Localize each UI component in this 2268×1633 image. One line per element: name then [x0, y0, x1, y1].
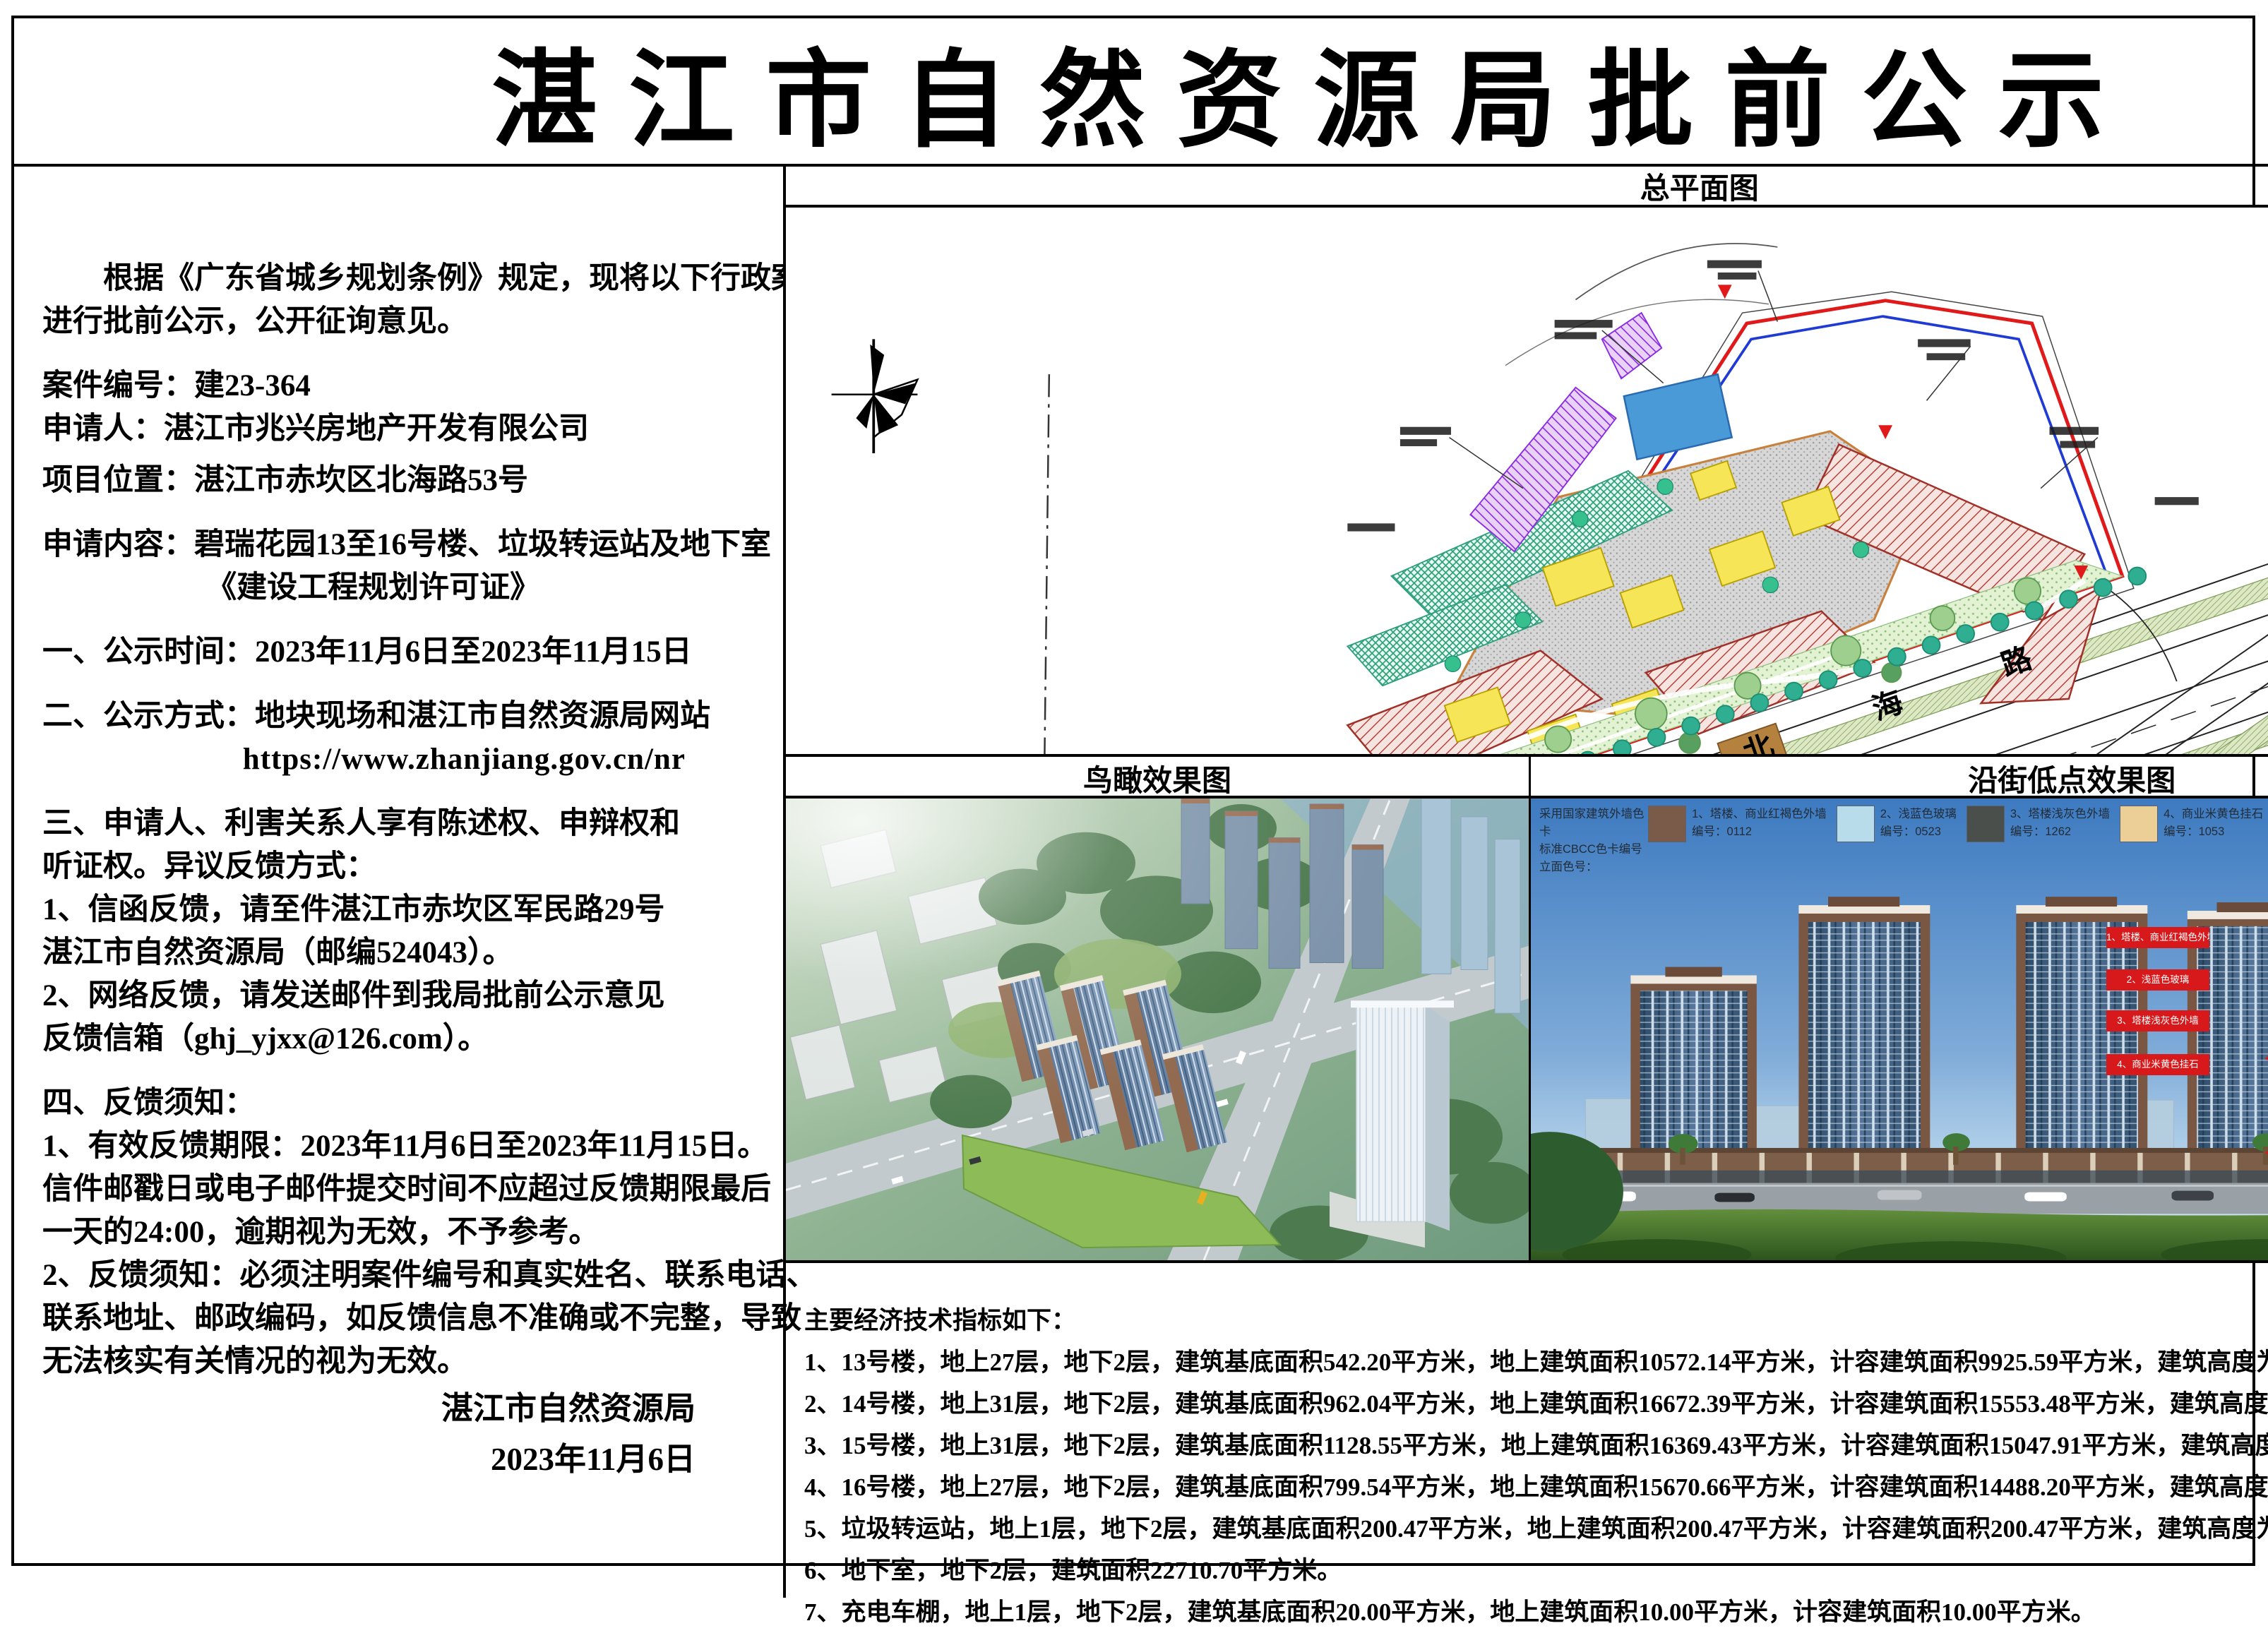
legend-intro-line: 标准CBCC色卡编号 — [1539, 841, 1645, 859]
birdseye-figure — [786, 798, 1529, 1260]
publicity-url: https://www.zhanjiang.gov.cn/nr — [243, 738, 773, 781]
indicators-panel: 主要经济技术指标如下： 1、13号楼，地上27层，地下2层，建筑基底面积542.… — [786, 1263, 2268, 1633]
mail-feedback-line: 湛江市自然资源局（邮编524043）。 — [42, 931, 773, 974]
indicator-line: 7、充电车棚，地上1层，地下2层，建筑基底面积20.00平方米，地上建筑面积10… — [804, 1591, 2268, 1633]
notice-page: 湛江市自然资源局批前公示 根据《广东省城乡规划条例》规定，现将以下行政案件 进行… — [11, 16, 2255, 1566]
notice-body: 根据《广东省城乡规划条例》规定，现将以下行政案件 进行批前公示，公开征询意见。 … — [14, 167, 786, 1598]
legend-item: 2、浅蓝色玻璃编号：0523 — [1837, 806, 1957, 842]
legend-item: 4、商业米黄色挂石编号：1053 — [2120, 806, 2263, 842]
signature-block: 湛江市自然资源局 2023年11月6日 — [42, 1383, 773, 1569]
tower-15 — [1798, 897, 1930, 1155]
callout-label: 4、商业米黄色挂石 — [2106, 1054, 2209, 1075]
legend-intro-line: 立面色号： — [1539, 859, 1645, 876]
page-content: 根据《广东省城乡规划条例》规定，现将以下行政案件 进行批前公示，公开征询意见。 … — [14, 167, 2268, 1563]
publicity-method: 二、公示方式：地块现场和湛江市自然资源局网站 — [42, 695, 773, 738]
project-location: 项目位置：湛江市赤坎区北海路53号 — [42, 459, 773, 502]
legend-code: 编号：0112 — [1692, 823, 1827, 841]
signature-org: 湛江市自然资源局 — [42, 1383, 696, 1434]
case-number: 案件编号：建23-364 — [42, 364, 773, 407]
color-swatch — [2120, 806, 2158, 842]
application-content: 申请内容：碧瑞花园13至16号楼、垃圾转运站及地下室 — [42, 523, 773, 566]
legend-intro-line: 采用国家建筑外墙色卡 — [1539, 806, 1645, 841]
legend-item: 3、塔楼浅灰色外墙编号：1262 — [1966, 806, 2110, 842]
notice-line: 进行批前公示，公开征询意见。 — [42, 300, 773, 343]
street-panel: 采用国家建筑外墙色卡 标准CBCC色卡编号 立面色号： 1、塔楼、商业红褐色外墙… — [1529, 798, 2268, 1260]
site-plan-panel: 北 海 路 — [786, 208, 2268, 757]
rights-line: 三、申请人、利害关系人享有陈述权、申辩权和 — [42, 802, 773, 845]
site-plan-caption: 总平面图 — [786, 167, 2268, 208]
site-plan-figure: 北 海 路 — [786, 208, 2268, 757]
notes-line: 1、有效反馈期限：2023年11月6日至2023年11月15日。 — [42, 1125, 773, 1168]
legend-intro: 采用国家建筑外墙色卡 标准CBCC色卡编号 立面色号： — [1539, 806, 1645, 876]
publicity-period: 一、公示时间：2023年11月6日至2023年11月15日 — [42, 630, 773, 674]
notes-heading: 四、反馈须知： — [42, 1082, 773, 1125]
callout-label: 2、浅蓝色玻璃 — [2106, 969, 2209, 991]
notes-line: 无法核实有关情况的视为无效。 — [42, 1340, 773, 1383]
web-feedback-line: 2、网络反馈，请发送邮件到我局批前公示意见 — [42, 974, 773, 1017]
site-plan-title: 总平面图 — [1640, 165, 1759, 208]
notes-line: 2、反馈须知：必须注明案件编号和真实姓名、联系电话、 — [42, 1254, 773, 1297]
signature-date: 2023年11月6日 — [42, 1434, 696, 1485]
legend-item: 1、塔楼、商业红褐色外墙编号：0112 — [1648, 806, 1827, 842]
permit-name: 《建设工程规划许可证》 — [206, 566, 773, 609]
rights-line: 听证权。异议反馈方式： — [42, 845, 773, 888]
render-row: 采用国家建筑外墙色卡 标准CBCC色卡编号 立面色号： 1、塔楼、商业红褐色外墙… — [786, 798, 2268, 1263]
notes-line: 一天的24:00，逾期视为无效，不予参考。 — [42, 1211, 773, 1254]
street-caption: 沿街低点效果图 — [1529, 757, 2268, 800]
indicators-heading: 主要经济技术指标如下： — [804, 1300, 2268, 1341]
birdseye-title: 鸟瞰效果图 — [1083, 757, 1231, 800]
mail-feedback-line: 1、信函反馈，请至件湛江市赤坎区军民路29号 — [42, 888, 773, 931]
applicant: 申请人：湛江市兆兴房地产开发有限公司 — [42, 407, 773, 450]
feedback-email: 反馈信箱（ghj_yjxx@126.com）。 — [42, 1017, 773, 1060]
notes-line: 联系地址、邮政编码，如反馈信息不准确或不完整，导致 — [42, 1297, 773, 1340]
tower-16 — [1630, 967, 1757, 1155]
color-swatch — [1648, 806, 1686, 842]
indicator-line: 2、14号楼，地上31层，地下2层，建筑基底面积962.04平方米，地上建筑面积… — [804, 1383, 2268, 1425]
indicator-line: 4、16号楼，地上27层，地下2层，建筑基底面积799.54平方米，地上建筑面积… — [804, 1466, 2268, 1508]
street-title: 沿街低点效果图 — [1968, 757, 2176, 800]
render-captions: 鸟瞰效果图 沿街低点效果图 — [786, 757, 2268, 798]
indicator-line: 3、15号楼，地上31层，地下2层，建筑基底面积1128.55平方米，地上建筑面… — [804, 1425, 2268, 1466]
legend-label: 3、塔楼浅灰色外墙 — [2010, 806, 2110, 823]
notes-line: 信件邮戳日或电子邮件提交时间不应超过反馈期限最后 — [42, 1168, 773, 1211]
birdseye-panel — [786, 798, 1529, 1260]
facade-legend: 采用国家建筑外墙色卡 标准CBCC色卡编号 立面色号： 1、塔楼、商业红褐色外墙… — [1539, 806, 2263, 876]
legend-label: 2、浅蓝色玻璃 — [1880, 806, 1957, 823]
color-swatch — [1837, 806, 1875, 842]
legend-label: 1、塔楼、商业红褐色外墙 — [1692, 806, 1827, 823]
legend-code: 编号：1262 — [2010, 823, 2110, 841]
indicator-line: 5、垃圾转运站，地上1层，地下2层，建筑基底面积200.47平方米，地上建筑面积… — [804, 1508, 2268, 1550]
commercial-podium — [1589, 1148, 2268, 1183]
legend-items: 1、塔楼、商业红褐色外墙编号：0112 2、浅蓝色玻璃编号：0523 3、塔楼浅… — [1648, 806, 2263, 842]
light-flare — [786, 798, 1529, 1260]
legend-label: 4、商业米黄色挂石 — [2163, 806, 2263, 823]
legend-code: 编号：0523 — [1880, 823, 1957, 841]
page-title: 湛江市自然资源局批前公示 — [491, 15, 2135, 168]
color-swatch — [1966, 806, 2005, 842]
figures-column: 总平面图 — [786, 167, 2268, 1598]
legend-code: 编号：1053 — [2163, 823, 2263, 841]
callout-label: 1、塔楼、商业红褐色外墙 — [2106, 927, 2209, 948]
callout-label: 3、塔楼浅灰色外墙 — [2106, 1010, 2209, 1031]
indicator-line: 6、地下室，地下2层，建筑面积22710.70平方米。 — [804, 1550, 2268, 1591]
indicator-line: 1、13号楼，地上27层，地下2层，建筑基底面积542.20平方米，地上建筑面积… — [804, 1341, 2268, 1383]
notice-line: 根据《广东省城乡规划条例》规定，现将以下行政案件 — [42, 257, 773, 300]
birdseye-caption: 鸟瞰效果图 — [786, 757, 1529, 800]
title-bar: 湛江市自然资源局批前公示 — [14, 18, 2268, 167]
